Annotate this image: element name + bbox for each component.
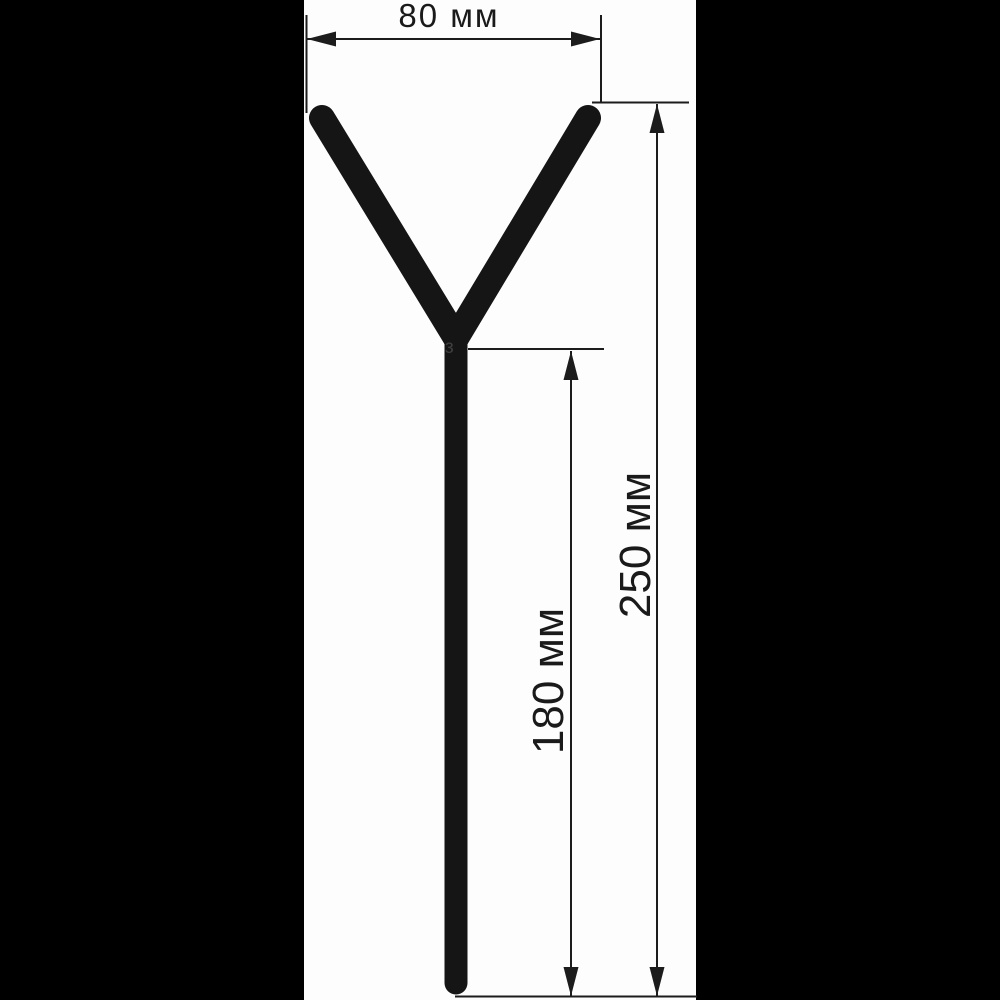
technical-drawing: з 80 мм 250 мм 180 мм [0, 0, 1000, 1000]
arrowhead-down-icon [564, 967, 579, 996]
arrowhead-up-icon [564, 351, 579, 380]
y-stand-figure [322, 118, 588, 983]
arrowhead-up-icon [650, 104, 665, 133]
dim-fork-width-label: 80 мм [398, 0, 499, 34]
dim-total-height-label: 250 мм [611, 472, 660, 618]
stand-left-arm [322, 118, 456, 338]
dim-stem-height-label: 180 мм [524, 608, 573, 754]
weld-mark: з [445, 337, 454, 358]
screenshot-stage: з 80 мм 250 мм 180 мм [0, 0, 1000, 1000]
arrowhead-left-icon [307, 32, 336, 47]
arrowhead-down-icon [650, 967, 665, 996]
stand-right-arm [456, 118, 588, 338]
arrowhead-right-icon [571, 32, 600, 47]
